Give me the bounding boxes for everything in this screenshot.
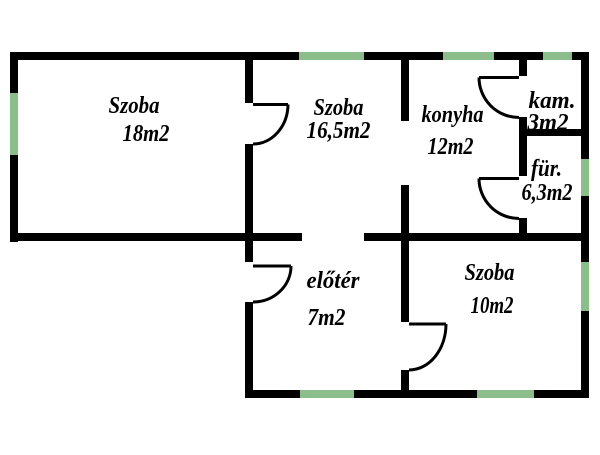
svg-text:18m2: 18m2 <box>123 121 170 147</box>
svg-text:3m2: 3m2 <box>527 110 569 136</box>
svg-text:10m2: 10m2 <box>471 293 514 319</box>
svg-text:előtér: előtér <box>307 268 361 294</box>
svg-text:6,3m2: 6,3m2 <box>522 180 573 206</box>
svg-text:16,5m2: 16,5m2 <box>307 118 371 144</box>
svg-text:7m2: 7m2 <box>308 305 346 331</box>
svg-text:Szoba: Szoba <box>109 93 160 119</box>
svg-text:für.: für. <box>531 156 562 182</box>
svg-text:12m2: 12m2 <box>428 134 474 160</box>
svg-text:konyha: konyha <box>422 102 484 128</box>
svg-text:Szoba: Szoba <box>465 260 515 286</box>
